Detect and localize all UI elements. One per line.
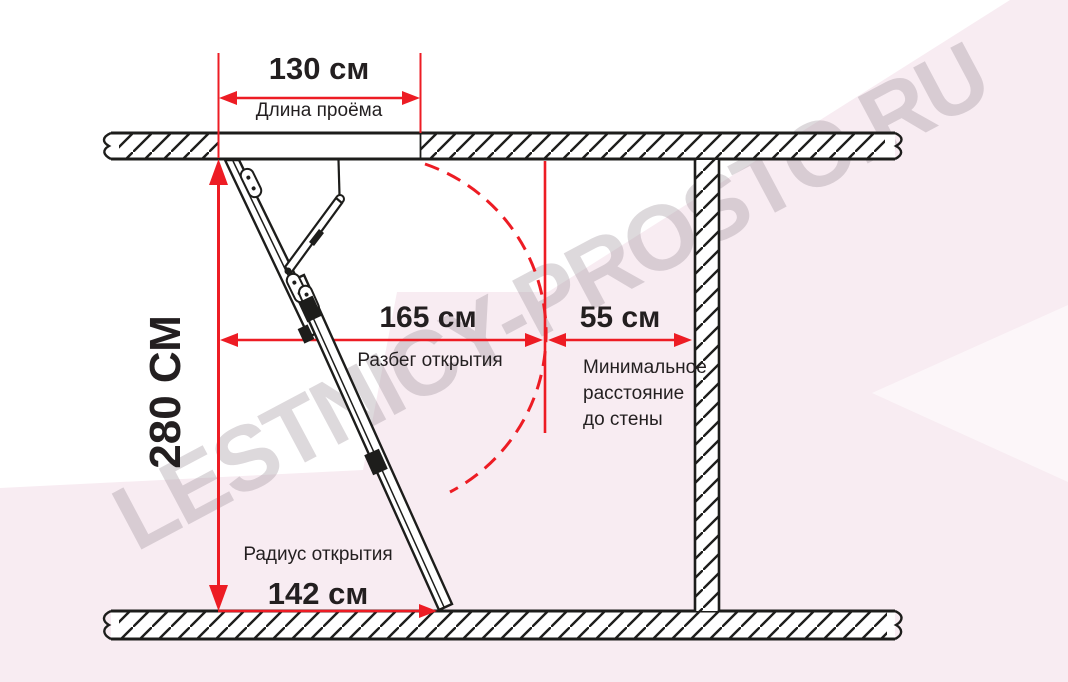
opening-length-value: 130 см bbox=[269, 52, 370, 86]
folding-strut bbox=[285, 198, 342, 273]
swing-span-value: 165 см bbox=[379, 301, 476, 334]
height-value: 280 СМ bbox=[142, 315, 190, 468]
opening-radius-value: 142 см bbox=[268, 577, 369, 611]
ceiling-slab bbox=[104, 133, 902, 159]
wall-clearance-label: Минимальное расстояние до стены bbox=[583, 355, 707, 433]
swing-span-label: Разбег открытия bbox=[357, 351, 502, 372]
mount-rod bbox=[339, 160, 340, 195]
wall-clearance-value: 55 см bbox=[580, 301, 661, 334]
opening-radius-label: Радиус открытия bbox=[243, 545, 392, 566]
floor-slab bbox=[104, 611, 902, 639]
attic-ladder bbox=[225, 160, 452, 610]
opening-length-label: Длина проёма bbox=[256, 101, 383, 122]
attic-ladder-dimensions-diagram: LESTNICY-PROSTO.RU bbox=[0, 0, 1068, 682]
